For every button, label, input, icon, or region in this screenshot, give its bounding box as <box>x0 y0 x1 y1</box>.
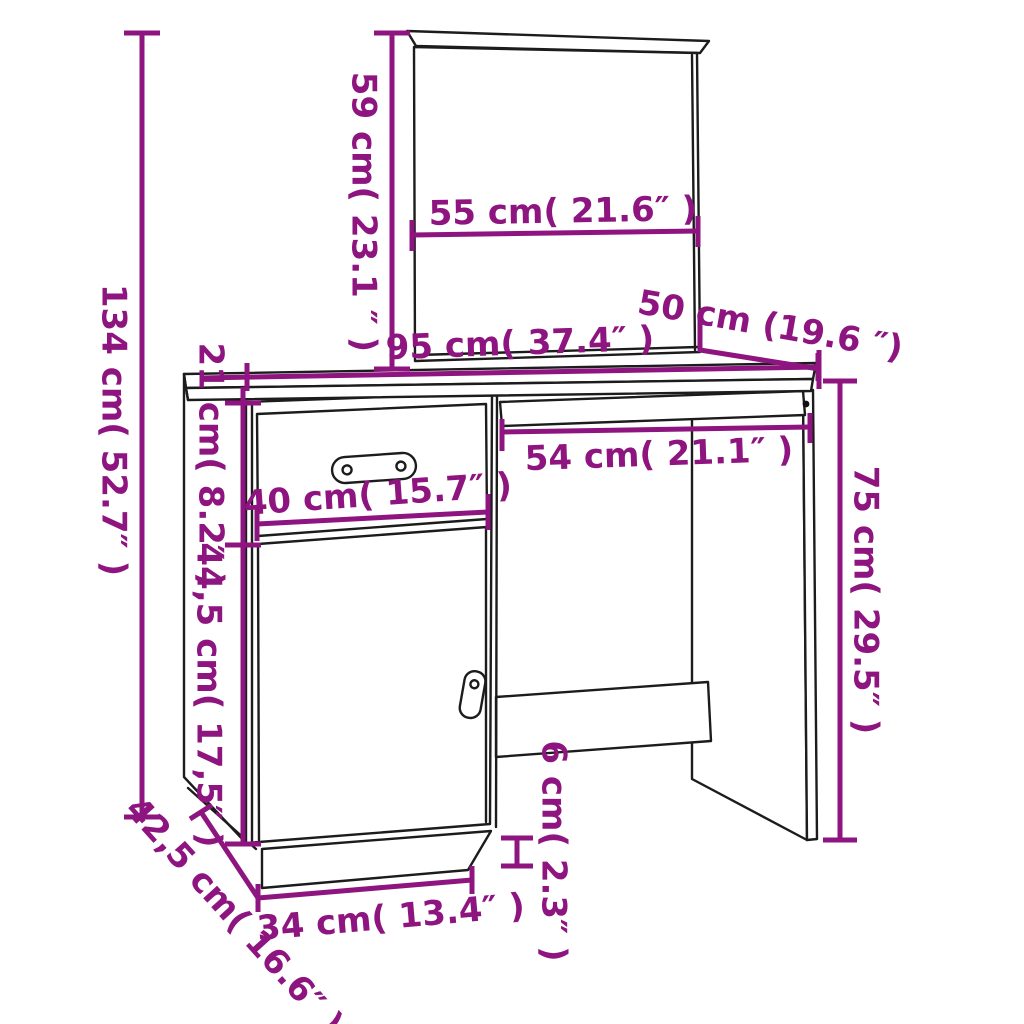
dimension-diagram: 59 cm( 23.1 ″ ) 55 cm( 21.6″ ) 134 cm( 5… <box>0 0 1024 1024</box>
dim-plinth-height-label: 6 cm( 2.3″ ) <box>534 740 574 961</box>
dim-door-front-height-label: 44,5 cm( 17,5″ ) <box>189 542 229 847</box>
dim-mirror-width-label: 55 cm( 21.6″ ) <box>428 189 697 234</box>
dim-total-height-label: 134 cm( 52.7″ ) <box>94 284 134 576</box>
dim-mirror-height-label: 59 cm( 23.1 ″ ) <box>344 72 384 352</box>
dim-plinth-height-line <box>501 838 533 866</box>
dim-desktop-depth-label: 50 cm (19.6 ″) <box>635 283 906 369</box>
dim-desk-side-height-label: 75 cm( 29.5″ ) <box>846 466 886 735</box>
modesty-panel <box>496 682 711 757</box>
door-left-edge <box>258 545 259 840</box>
tray-knob <box>803 401 810 408</box>
cabinet-right-side-edge <box>496 394 497 827</box>
dim-desktop-width-label: 95 cm( 37.4″ ) <box>385 319 655 368</box>
